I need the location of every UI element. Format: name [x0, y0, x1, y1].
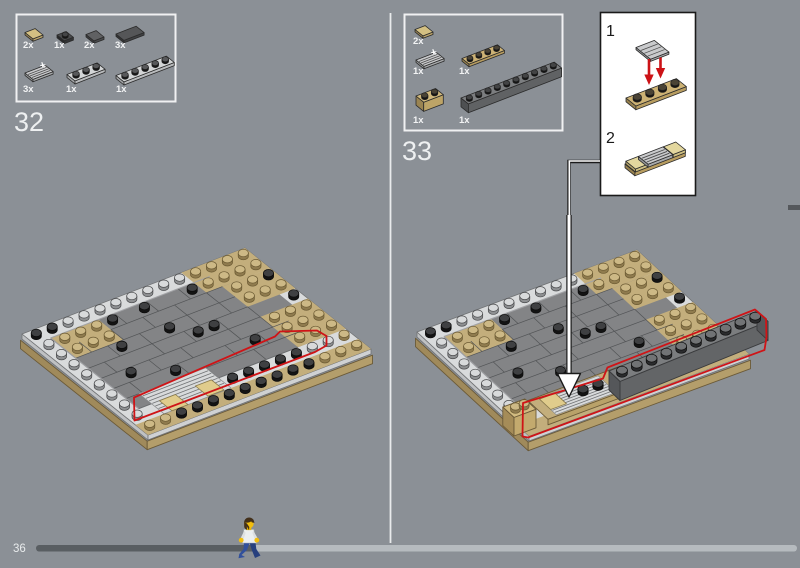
svg-text:2x: 2x [84, 40, 95, 51]
svg-text:1x: 1x [66, 84, 77, 95]
svg-text:3x: 3x [115, 40, 126, 51]
svg-text:1x: 1x [459, 66, 470, 77]
svg-text:2: 2 [606, 130, 615, 147]
svg-text:1x: 1x [459, 115, 470, 126]
svg-text:1x: 1x [116, 84, 127, 95]
svg-text:1: 1 [606, 23, 615, 40]
svg-text:1x: 1x [413, 66, 424, 77]
svg-text:32: 32 [14, 107, 44, 137]
svg-text:33: 33 [402, 136, 432, 166]
svg-text:1x: 1x [54, 40, 65, 51]
svg-text:36: 36 [13, 543, 26, 555]
svg-text:2x: 2x [23, 40, 34, 51]
svg-text:2x: 2x [413, 36, 424, 47]
svg-text:1x: 1x [413, 115, 424, 126]
svg-text:3x: 3x [23, 84, 34, 95]
